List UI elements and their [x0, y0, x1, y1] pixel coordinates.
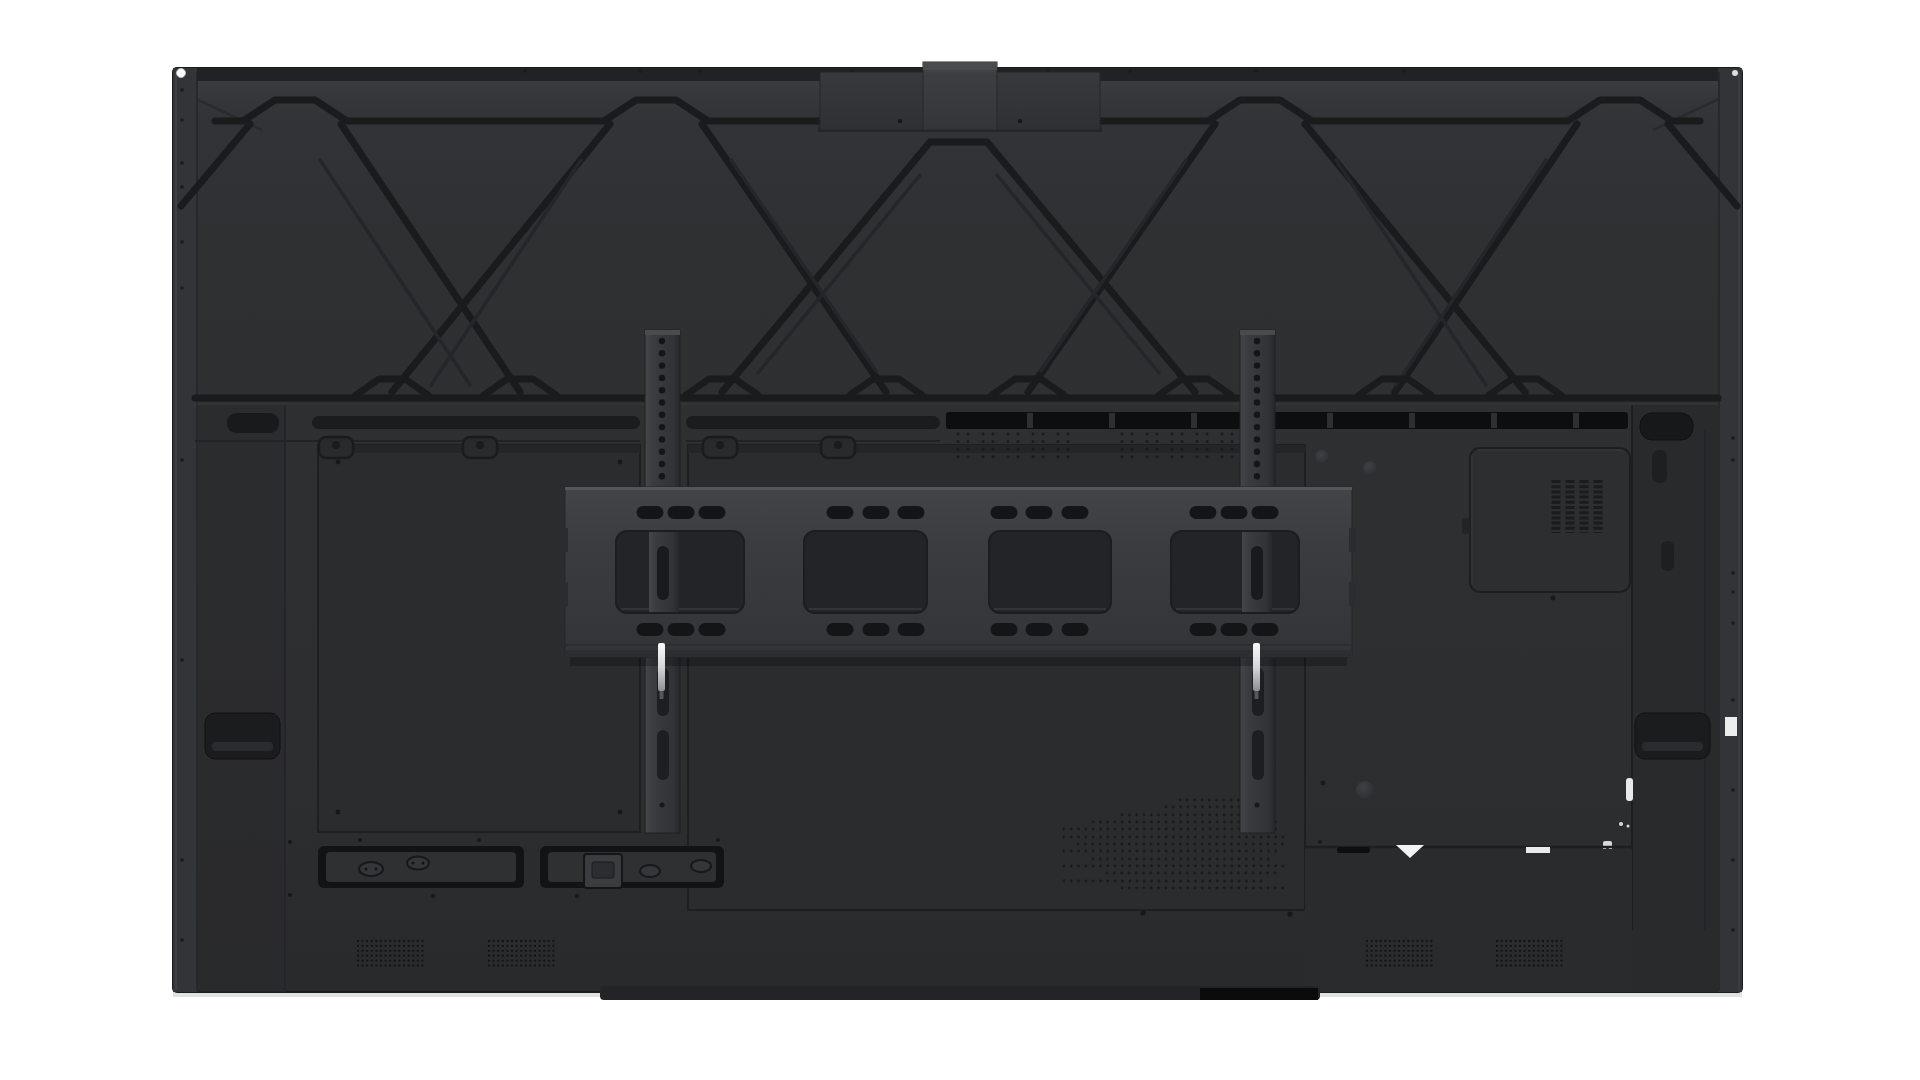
speaker-dot [515, 964, 517, 966]
speaker-dot [529, 955, 531, 957]
speaker-dot [1514, 959, 1516, 961]
vent-dot [1206, 448, 1209, 451]
speaker-dot [1500, 964, 1502, 966]
vent-dot [1017, 440, 1020, 443]
speaker-dot [1510, 964, 1512, 966]
speaker-dot [1537, 940, 1539, 942]
plate-center-block [923, 62, 997, 130]
vent-dot [1017, 455, 1020, 458]
perforation-dot [1187, 865, 1190, 868]
speaker-dot [1370, 959, 1372, 961]
speaker-dot [1407, 959, 1409, 961]
speaker-dot [506, 955, 508, 957]
screw-dot [716, 838, 720, 842]
perforation-dot [1259, 872, 1262, 875]
speaker-dot [538, 940, 540, 942]
speaker-dot [538, 950, 540, 952]
perforation-dot [1209, 828, 1212, 831]
oval-port [640, 865, 660, 877]
speaker-dot [1505, 945, 1507, 947]
perforation-dot [1121, 828, 1124, 831]
speaker-dot [1389, 959, 1391, 961]
speaker-dot [375, 955, 377, 957]
speaker-dot [1426, 950, 1428, 952]
perforation-dot [1194, 880, 1197, 883]
perforation-dot [1106, 821, 1109, 824]
rail-hole [1254, 473, 1260, 479]
speaker-dot [1403, 959, 1405, 961]
speaker-dot [407, 964, 409, 966]
speaker-dot [1398, 955, 1400, 957]
speaker-dot [375, 950, 377, 952]
speaker-dot [1412, 955, 1414, 957]
speaker-dot [511, 955, 513, 957]
perforation-dot [1267, 858, 1270, 861]
speaker-dot [375, 964, 377, 966]
vent-dot [1042, 448, 1045, 451]
plate-screw [898, 119, 902, 123]
speaker-dot [421, 945, 423, 947]
connector-bay-right [540, 846, 724, 888]
side-dot [1619, 822, 1623, 826]
speaker-dot [417, 940, 419, 942]
vent-dot [957, 433, 960, 436]
perforation-dot [1150, 814, 1153, 817]
speaker-dot [1426, 964, 1428, 966]
perforation-dot [1230, 799, 1233, 802]
speaker-dot [1389, 964, 1391, 966]
perforation-dot [1091, 843, 1094, 846]
vent-separator [1109, 413, 1115, 428]
speaker-dot [375, 940, 377, 942]
speaker-dot [1505, 955, 1507, 957]
speaker-dot [511, 945, 513, 947]
speaker-dot [1380, 940, 1382, 942]
locking-pin [1253, 643, 1260, 691]
rail-slot [1252, 730, 1264, 780]
speaker-dot [407, 945, 409, 947]
perforation-dot [1201, 872, 1204, 875]
speaker-dot [552, 950, 554, 952]
speaker-dot [1389, 940, 1391, 942]
right-slot-b [1661, 541, 1674, 571]
speaker-dot [1416, 964, 1418, 966]
perforation-dot [1230, 887, 1233, 890]
perforation-dot [1113, 872, 1116, 875]
perforation-dot [1135, 858, 1138, 861]
perforation-dot [1230, 872, 1233, 875]
bezel-screw [1402, 69, 1406, 73]
speaker-dot [357, 940, 359, 942]
perforation-dot [1260, 836, 1263, 839]
perforation-dot [1135, 821, 1138, 824]
speaker-dot [1523, 964, 1525, 966]
speaker-dot [1389, 950, 1391, 952]
perforation-dot [1179, 821, 1182, 824]
speaker-dot [1375, 959, 1377, 961]
bezel-screw [1731, 788, 1735, 792]
perforation-dot [1216, 887, 1219, 890]
perforation-dot [1070, 836, 1073, 839]
perforation-dot [1194, 806, 1197, 809]
perforation-dot [1223, 858, 1226, 861]
bracket-pill-slot [1221, 506, 1248, 519]
speaker-dot [403, 959, 405, 961]
speaker-dot [506, 964, 508, 966]
speaker-dot [417, 959, 419, 961]
perforation-dot [1092, 865, 1095, 868]
vent-dot [1196, 448, 1199, 451]
perforation-dot [1106, 880, 1109, 883]
bracket-pill-slot [637, 506, 664, 519]
speaker-dot [534, 959, 536, 961]
port-pin [375, 868, 378, 871]
handle-left-lip [212, 742, 273, 751]
speaker-dot [1407, 964, 1409, 966]
screw-dot [358, 838, 362, 842]
perforation-dot [1128, 880, 1131, 883]
speaker-dot [529, 950, 531, 952]
io-screw [1318, 840, 1322, 844]
perforation-dot [1114, 865, 1117, 868]
speaker-dot [488, 955, 490, 957]
speaker-dot [538, 964, 540, 966]
carry-handle-top-left [227, 413, 279, 433]
perforation-dot [1267, 887, 1270, 890]
rail-hole [659, 424, 665, 430]
speaker-dot [1519, 964, 1521, 966]
perforation-dot [1106, 850, 1109, 853]
door-notch [1462, 518, 1470, 534]
vent-dot [1156, 448, 1159, 451]
speaker-dot [1528, 964, 1530, 966]
perforation-dot [1077, 880, 1080, 883]
perforation-dot [1237, 799, 1240, 802]
perforation-dot [1150, 850, 1153, 853]
bezel-screw [180, 658, 184, 662]
bezel-screw [1731, 621, 1735, 625]
rail-hole [1254, 461, 1260, 467]
perforation-dot [1114, 836, 1117, 839]
speaker-dot [1533, 945, 1535, 947]
speaker-dot [492, 950, 494, 952]
speaker-dot [417, 955, 419, 957]
speaker-dot [552, 964, 554, 966]
perforation-dot [1157, 814, 1160, 817]
vent-dot [1032, 440, 1035, 443]
bezel-screw [1731, 458, 1735, 462]
perforation-dot [1077, 828, 1080, 831]
perforation-dot [1201, 821, 1204, 824]
speaker-dot [1514, 955, 1516, 957]
perforation-dot [1281, 887, 1284, 890]
vent-separator [1491, 413, 1497, 428]
panel-screw [336, 460, 341, 465]
bezel-screw [698, 69, 702, 73]
vent-dot [1146, 440, 1149, 443]
speaker-dot [412, 940, 414, 942]
perforation-dot [1208, 872, 1211, 875]
speaker-dot [1412, 959, 1414, 961]
speaker-dot [1537, 964, 1539, 966]
perforation-dot [1128, 858, 1131, 861]
perforation-dot [1230, 814, 1233, 817]
perforation-dot [1267, 850, 1270, 853]
vent-band [946, 412, 1628, 429]
perforation-dot [1201, 799, 1204, 802]
bracket-top-highlight [565, 487, 1352, 490]
speaker-dot [1500, 950, 1502, 952]
speaker-dot [488, 959, 490, 961]
speaker-dot [403, 950, 405, 952]
vent-dot [1131, 448, 1134, 451]
speaker-dot [538, 955, 540, 957]
speaker-dot [394, 964, 396, 966]
perforation-dot [1106, 836, 1109, 839]
perforation-dot [1223, 828, 1226, 831]
speaker-dot [511, 940, 513, 942]
hook-tab [463, 437, 497, 458]
speaker-dot [1514, 945, 1516, 947]
perforation-dot [1165, 821, 1168, 824]
perforation-dot [1187, 828, 1190, 831]
cutout-highlight [809, 608, 922, 610]
speaker-dot [1500, 940, 1502, 942]
perforation-dot [1092, 821, 1095, 824]
speaker-dot [398, 940, 400, 942]
perforation-dot [1216, 836, 1219, 839]
vent-dot [967, 448, 970, 451]
bump [1356, 781, 1374, 799]
vent-dot [1057, 440, 1060, 443]
product-photo-stage [0, 0, 1920, 1080]
perforation-dot [1143, 821, 1146, 824]
vent-dot [1017, 448, 1020, 451]
speaker-dot [1412, 950, 1414, 952]
vent-dot [1181, 455, 1184, 458]
speaker-dot [1496, 955, 1498, 957]
perforation-dot [1143, 865, 1146, 868]
bezel-screw [1128, 69, 1132, 73]
vent-dot [957, 440, 960, 443]
port-pin [365, 868, 368, 871]
speaker-dot [1510, 959, 1512, 961]
perforation-dot [1187, 836, 1190, 839]
speaker-dot [417, 950, 419, 952]
perforation-dot [1114, 821, 1117, 824]
speaker-dot [366, 959, 368, 961]
perforation-dot [1208, 821, 1211, 824]
perforation-dot [1157, 887, 1160, 890]
speaker-dot [1416, 940, 1418, 942]
plate-screw [1018, 119, 1022, 123]
speaker-dot [1398, 945, 1400, 947]
vent-dot [1206, 455, 1209, 458]
speaker-dot [1398, 950, 1400, 952]
perforation-dot [1143, 850, 1146, 853]
perforation-dot [1113, 843, 1116, 846]
speaker-dot [520, 959, 522, 961]
speaker-dot [502, 940, 504, 942]
perforation-dot [1260, 865, 1263, 868]
perforation-dot [1216, 858, 1219, 861]
perforation-dot [1099, 836, 1102, 839]
rail-hole [1254, 436, 1260, 442]
speaker-dot [1426, 940, 1428, 942]
speaker-dot [492, 940, 494, 942]
bracket-cutout [1171, 531, 1299, 613]
speaker-dot [371, 945, 373, 947]
perforation-dot [1179, 865, 1182, 868]
speaker-dot [1407, 940, 1409, 942]
speaker-dot [1407, 950, 1409, 952]
speaker-dot [371, 964, 373, 966]
bezel-screw [1731, 698, 1735, 702]
rail-hole [659, 362, 665, 368]
perforation-dot [1186, 887, 1189, 890]
speaker-dot [520, 940, 522, 942]
perforation-dot [1143, 836, 1146, 839]
perforation-dot [1092, 836, 1095, 839]
vent-dot [1121, 448, 1124, 451]
perforation-dot [1230, 821, 1233, 824]
speaker-dot [384, 945, 386, 947]
perforation-dot [1121, 814, 1124, 817]
perforation-dot [1150, 887, 1153, 890]
perforation-dot [1099, 865, 1102, 868]
speaker-dot [502, 950, 504, 952]
speaker-dot [389, 959, 391, 961]
speaker-dot [1528, 945, 1530, 947]
speaker-dot [1421, 940, 1423, 942]
perforation-dot [1231, 865, 1234, 868]
perforation-dot [1194, 836, 1197, 839]
corner-screw-hole-left [177, 69, 186, 78]
speaker-dot [1523, 959, 1525, 961]
speaker-dot [1537, 945, 1539, 947]
perforation-dot [1106, 858, 1109, 861]
perforation-dot [1128, 828, 1131, 831]
speaker-dot [375, 945, 377, 947]
perforation-dot [1172, 828, 1175, 831]
speaker-dot [384, 959, 386, 961]
speaker-dot [515, 945, 517, 947]
io-shelf [1305, 849, 1632, 992]
perforation-dot [1099, 828, 1102, 831]
speaker-dot [361, 945, 363, 947]
speaker-dot [1370, 940, 1372, 942]
speaker-dot [1556, 964, 1558, 966]
speaker-dot [1560, 959, 1562, 961]
perforation-dot [1085, 865, 1088, 868]
speaker-dot [1421, 964, 1423, 966]
speaker-dot [1528, 940, 1530, 942]
perforation-dot [1142, 843, 1145, 846]
speaker-dot [548, 959, 550, 961]
speaker-dot [403, 964, 405, 966]
perforation-dot [1223, 843, 1226, 846]
perforation-dot [1172, 843, 1175, 846]
speaker-dot [1542, 955, 1544, 957]
perforation-dot [1187, 880, 1190, 883]
vent-dot [1231, 448, 1234, 451]
speaker-dot [1528, 955, 1530, 957]
bezel-screw [180, 88, 184, 92]
perforation-dot [1077, 865, 1080, 868]
perforation-dot [1179, 799, 1182, 802]
speaker-dot [1412, 940, 1414, 942]
vent-dot [1067, 433, 1070, 436]
bezel-screw [639, 69, 643, 73]
perforation-dot [1260, 880, 1263, 883]
rail-hole [1254, 399, 1260, 405]
speaker-dot [394, 940, 396, 942]
perforation-dot [1201, 836, 1204, 839]
perforation-dot [1201, 880, 1204, 883]
perforation-dot [1164, 887, 1167, 890]
perforation-dot [1201, 887, 1204, 890]
perforation-dot [1165, 850, 1168, 853]
perforation-dot [1142, 872, 1145, 875]
bracket-pill-slot [699, 506, 726, 519]
perforation-dot [1092, 858, 1095, 861]
vent-dot [1057, 455, 1060, 458]
perforation-dot [1164, 843, 1167, 846]
bracket-pill-slot [668, 506, 695, 519]
speaker-dot [421, 955, 423, 957]
perforation-dot [1136, 880, 1139, 883]
vent-dot [1042, 440, 1045, 443]
perforation-dot [1085, 880, 1088, 883]
rail-hole [1254, 375, 1260, 381]
hook-tab [319, 437, 353, 458]
perforation-dot [1157, 872, 1160, 875]
vent-dot [1032, 433, 1035, 436]
speaker-dot [1551, 964, 1553, 966]
speaker-dot [371, 940, 373, 942]
speaker-dot [1393, 959, 1395, 961]
speaker-dot [1412, 964, 1414, 966]
perforation-dot [1281, 843, 1284, 846]
perforation-dot [1201, 850, 1204, 853]
perforation-dot [1201, 828, 1204, 831]
speaker-dot [412, 945, 414, 947]
perforation-dot [1120, 872, 1123, 875]
vent-dot [1221, 433, 1224, 436]
perforation-dot [1179, 836, 1182, 839]
vent-dot [1196, 440, 1199, 443]
perforation-dot [1194, 814, 1197, 817]
perforation-dot [1208, 858, 1211, 861]
perforation-dot [1121, 887, 1124, 890]
perforation-dot [1245, 865, 1248, 868]
vent-separator [1573, 413, 1579, 428]
vent-dot [1007, 455, 1010, 458]
left-column [197, 405, 285, 992]
display-rear-illustration [0, 0, 1920, 1080]
perforation-dot [1252, 880, 1255, 883]
speaker-dot [1384, 945, 1386, 947]
vent-separator [1027, 413, 1033, 428]
perforation-dot [1171, 872, 1174, 875]
perforation-dot [1164, 814, 1167, 817]
perforation-dot [1231, 850, 1234, 853]
speaker-dot [1426, 955, 1428, 957]
speaker-dot [1380, 955, 1382, 957]
speaker-dot [389, 940, 391, 942]
perforation-dot [1245, 858, 1248, 861]
vent-dot [1067, 440, 1070, 443]
